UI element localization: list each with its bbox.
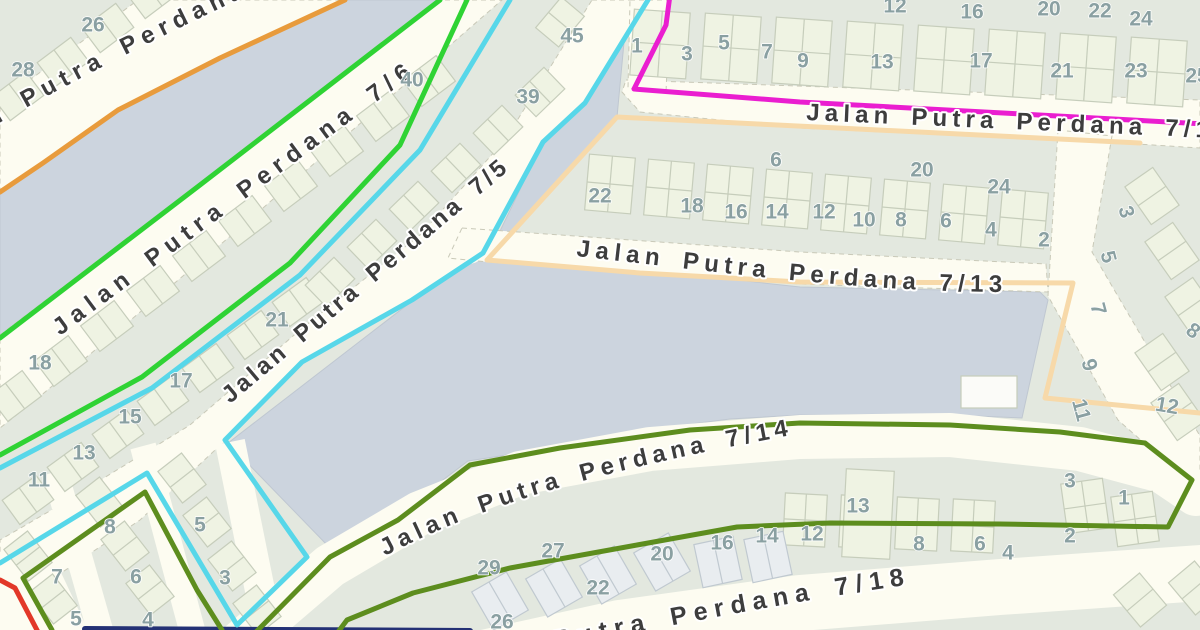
house-number: 21 [1050,60,1074,83]
house-number: 12 [800,523,823,546]
house-number: 6 [770,149,782,172]
building [961,376,1017,408]
house-number: 28 [11,59,35,82]
house-number: 20 [910,159,933,182]
house-number: 22 [586,577,609,600]
house-number: 17 [169,370,192,393]
house-number: 21 [265,309,289,332]
house-number: 14 [765,201,789,224]
house-number: 26 [490,611,513,630]
house-number: 24 [1129,8,1153,31]
house-number: 2 [1064,525,1076,548]
house-number: 4 [1002,542,1014,565]
house-number: 25 [1185,65,1200,88]
house-number: 10 [852,209,875,232]
house-number: 24 [987,176,1011,199]
house-number: 12 [1154,393,1181,420]
house-number: 15 [118,406,142,429]
house-number: 5 [194,514,206,537]
house-number: 13 [72,442,95,465]
house-number: 7 [51,566,63,589]
house-number: 16 [710,532,733,555]
house-number: 22 [1088,0,1111,23]
house-number: 3 [681,43,693,66]
house-number: 8 [895,209,907,232]
house-number: 20 [1037,0,1060,21]
house-number: 8 [104,516,116,539]
house-number: 40 [400,69,423,92]
house-number: 3 [219,567,231,590]
house-number: 23 [1124,60,1147,83]
house-number: 20 [650,543,673,566]
house-number: 2 [1038,229,1050,252]
house-number: 5 [70,608,82,630]
house-number: 45 [560,25,584,48]
house-number: 6 [130,566,142,589]
house-number: 29 [477,557,500,580]
house-number: 17 [969,50,992,73]
map-view: Jalan Putra Perdana 7/7Jalan Putra Perda… [0,0,1200,630]
house-number: 6 [974,533,986,556]
house-number: 13 [846,495,869,518]
house-number: 7 [761,41,773,64]
house-number: 16 [724,201,747,224]
house-number: 4 [985,219,997,242]
house-number: 4 [142,609,154,630]
house-number: 3 [1064,470,1076,493]
house-number: 16 [960,1,983,24]
house-number: 1 [631,35,643,58]
house-number: 12 [883,0,906,18]
house-number: 6 [940,210,952,233]
house-number: 18 [680,195,704,218]
house-number: 27 [541,540,564,563]
house-number: 5 [718,32,730,55]
map-canvas[interactable]: Jalan Putra Perdana 7/7Jalan Putra Perda… [0,0,1200,630]
house-number: 11 [28,469,51,492]
house-number: 26 [81,14,104,37]
house-number: 8 [913,533,925,556]
house-number: 1 [1118,487,1130,510]
house-number: 12 [812,201,835,224]
house-number: 14 [755,525,779,548]
house-number: 39 [516,86,539,109]
house-number: 18 [28,352,52,375]
house-number: 22 [588,185,611,208]
house-number: 13 [870,51,893,74]
house-number: 9 [797,50,809,73]
